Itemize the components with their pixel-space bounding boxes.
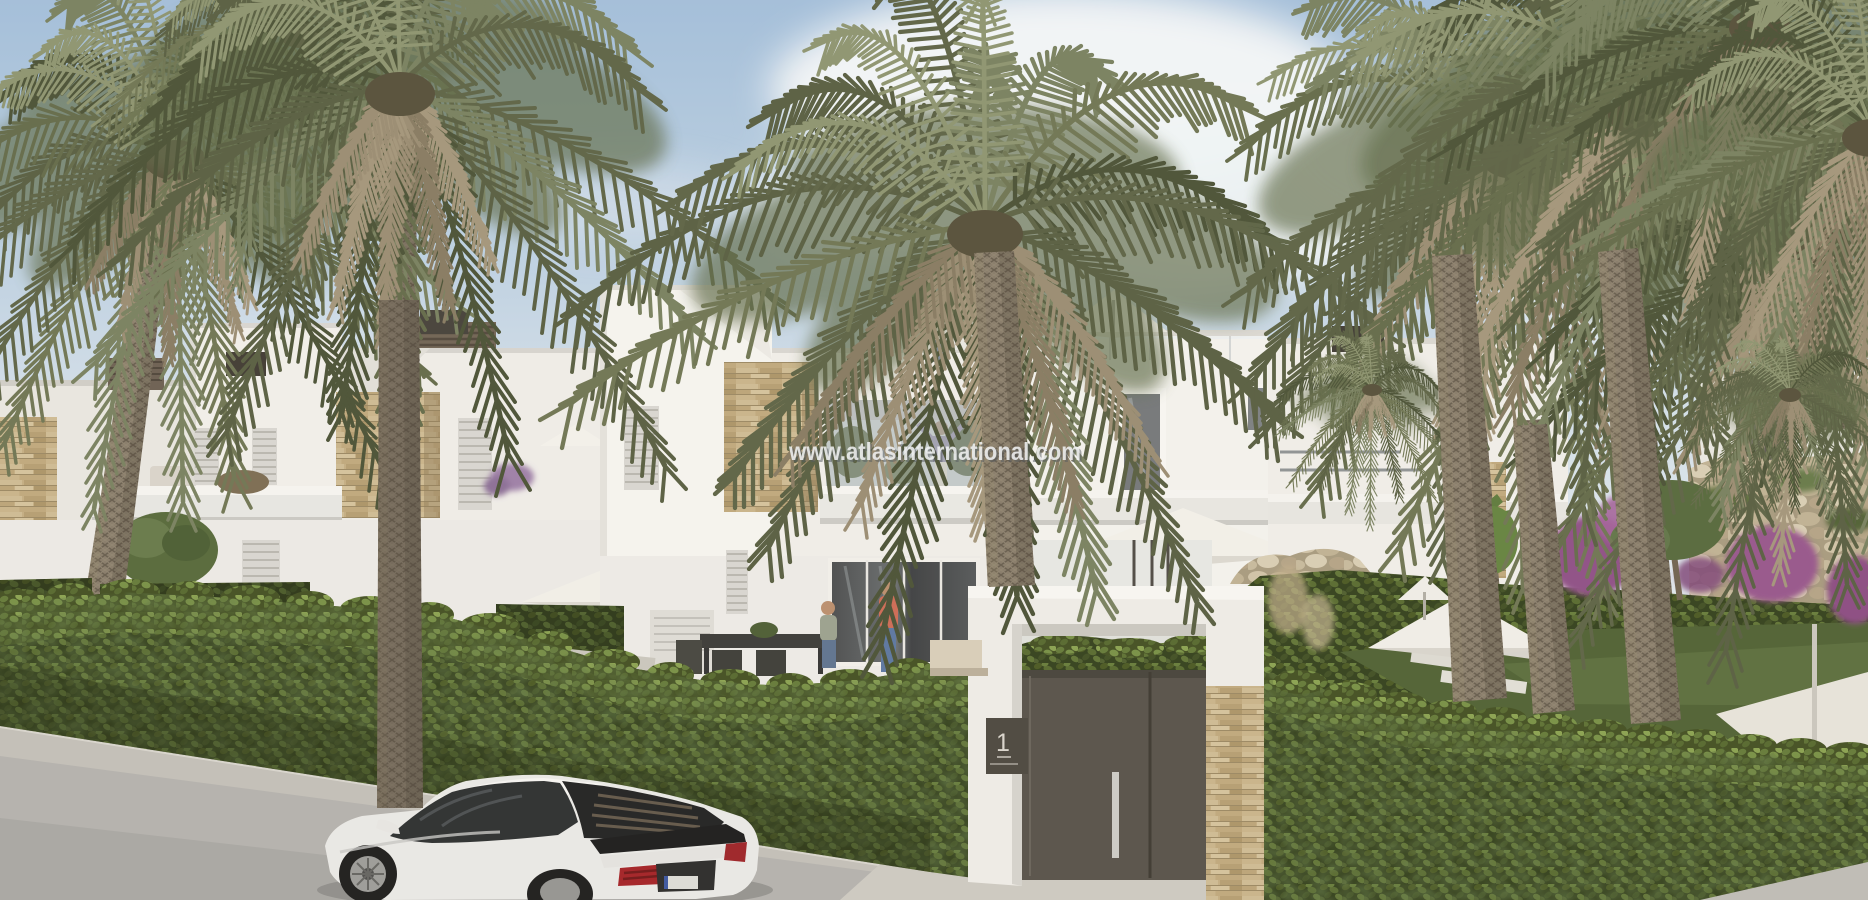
svg-text:www.atlasinternational.com: www.atlasinternational.com bbox=[788, 438, 1081, 466]
